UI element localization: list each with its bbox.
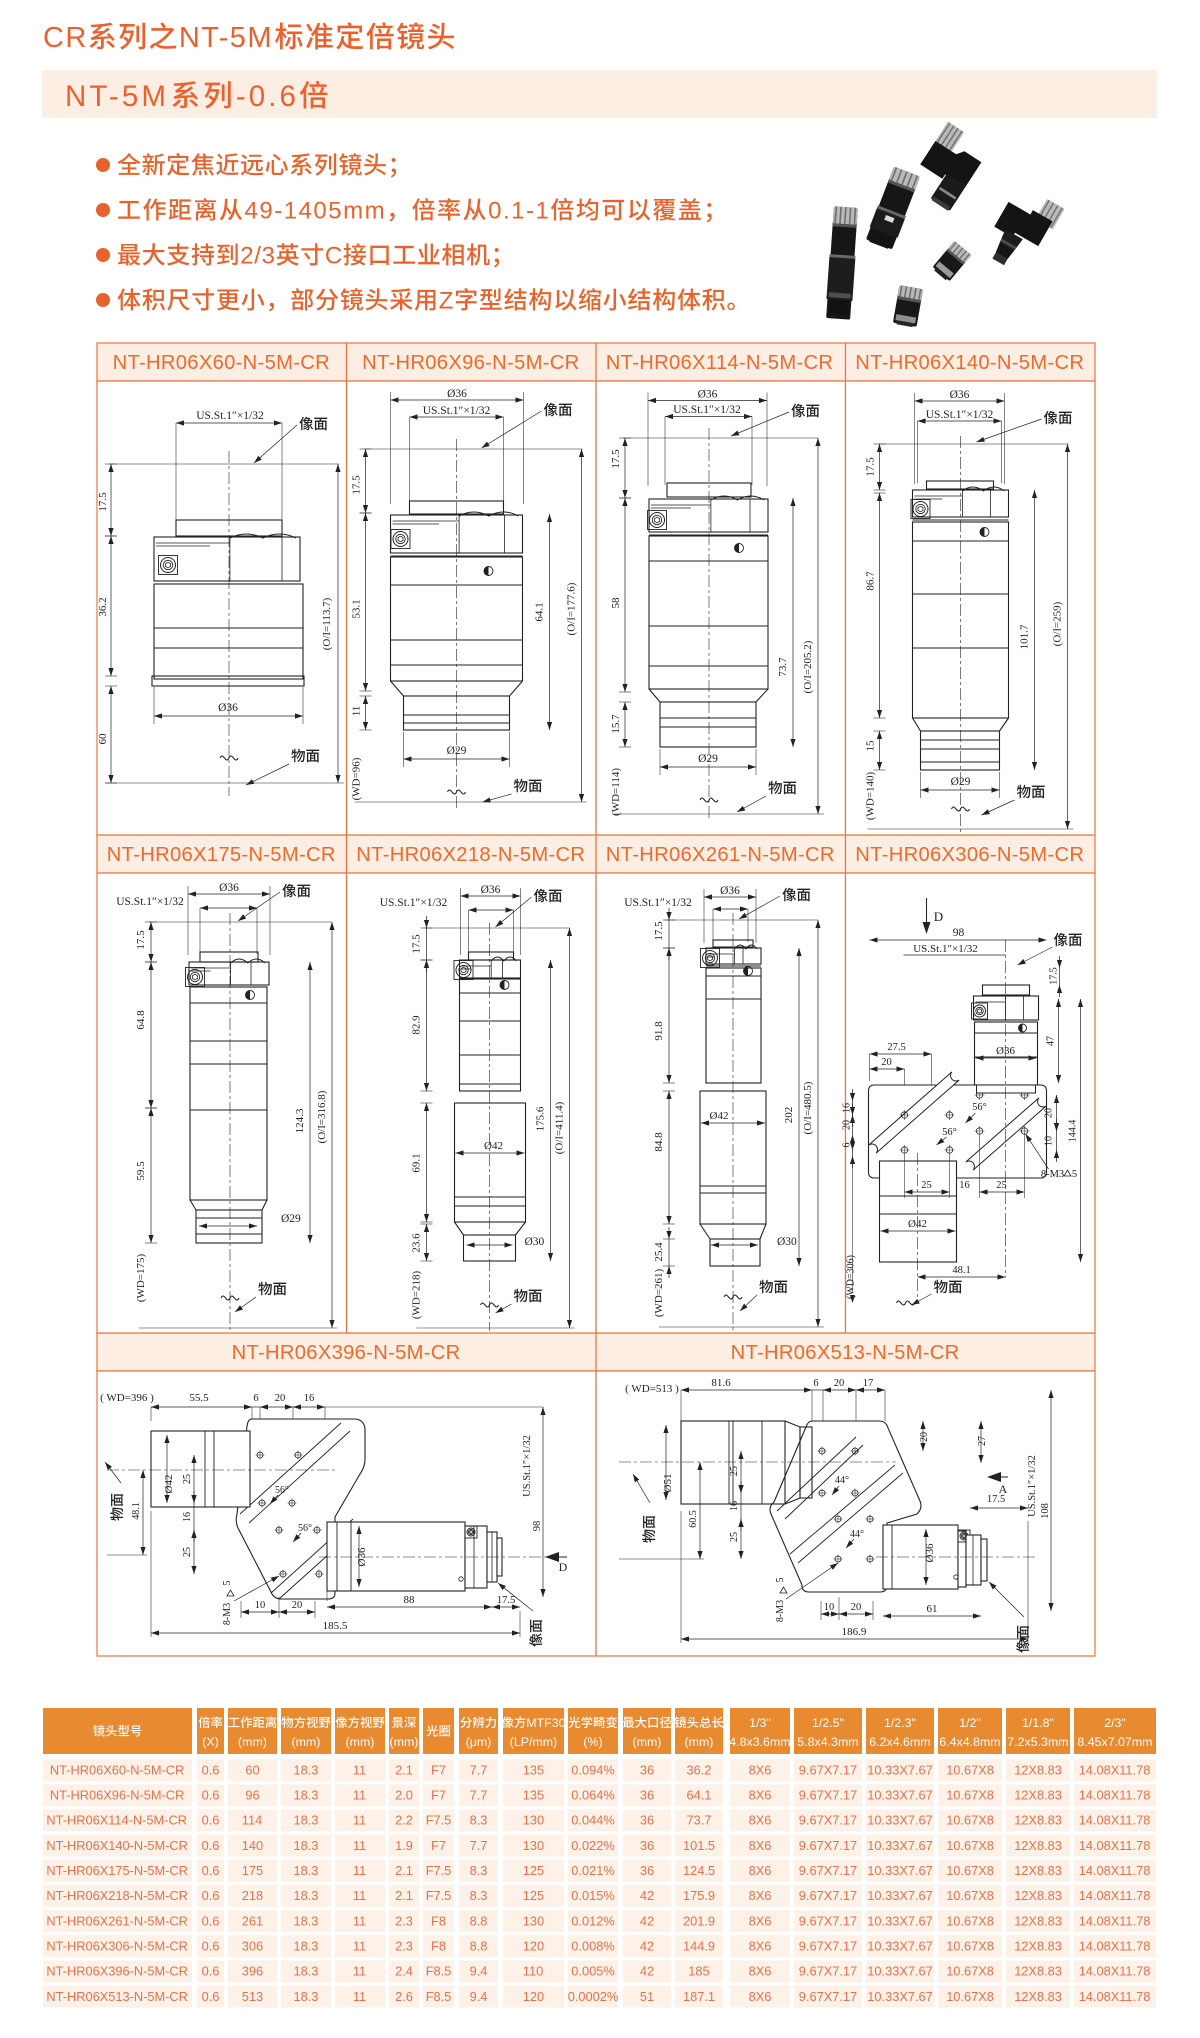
svg-text:9.67X7.17: 9.67X7.17 <box>799 1913 857 1928</box>
svg-text:Ø36: Ø36 <box>698 389 718 401</box>
svg-text:NT-HR06X218-N-5M-CR: NT-HR06X218-N-5M-CR <box>46 1888 188 1903</box>
svg-text:11: 11 <box>353 1939 366 1954</box>
svg-text:42: 42 <box>640 1913 654 1928</box>
svg-text:0.6: 0.6 <box>202 1762 220 1777</box>
svg-text:36: 36 <box>640 1762 654 1777</box>
svg-text:10.33X7.67: 10.33X7.67 <box>867 1989 932 2004</box>
svg-text:5: 5 <box>1072 1169 1077 1180</box>
svg-text:Ø51: Ø51 <box>662 1474 674 1493</box>
svg-text:18.3: 18.3 <box>294 1913 319 1928</box>
svg-text:2.3: 2.3 <box>395 1913 413 1928</box>
svg-text:96: 96 <box>245 1788 259 1803</box>
svg-text:8-M3: 8-M3 <box>222 1603 233 1625</box>
svg-text:124.5: 124.5 <box>683 1863 715 1878</box>
svg-text:2.4: 2.4 <box>395 1964 413 1979</box>
svg-text:36: 36 <box>640 1863 654 1878</box>
svg-text:US.St.1″×1/32: US.St.1″×1/32 <box>423 405 491 417</box>
svg-text:48.1: 48.1 <box>131 1502 142 1520</box>
svg-text:NT-5M: NT-5M <box>179 22 273 54</box>
svg-text:11: 11 <box>353 1964 366 1979</box>
svg-text:( WD=513 ): ( WD=513 ) <box>625 1383 679 1395</box>
svg-text:25: 25 <box>729 1532 740 1542</box>
svg-text:NT-HR06X140-N-5M-CR: NT-HR06X140-N-5M-CR <box>46 1838 188 1853</box>
svg-text:130: 130 <box>523 1913 544 1928</box>
svg-text:US.St.1″×1/32: US.St.1″×1/32 <box>380 897 448 909</box>
svg-text:25: 25 <box>182 1547 193 1557</box>
svg-text:Ø29: Ø29 <box>698 753 718 765</box>
svg-text:20: 20 <box>275 1393 286 1404</box>
svg-text:0.6: 0.6 <box>202 1913 220 1928</box>
svg-text:US.St.1″×1/32: US.St.1″×1/32 <box>913 943 978 955</box>
svg-text:7.7: 7.7 <box>470 1762 488 1777</box>
svg-text:2.1: 2.1 <box>395 1762 413 1777</box>
svg-text:36: 36 <box>640 1838 654 1853</box>
svg-text:10: 10 <box>1044 1136 1055 1146</box>
svg-text:6: 6 <box>842 1143 853 1148</box>
svg-text:48.1: 48.1 <box>952 1265 970 1276</box>
svg-text:17.5: 17.5 <box>610 449 622 469</box>
svg-text:12X8.83: 12X8.83 <box>1014 1788 1062 1803</box>
svg-text:10: 10 <box>824 1602 835 1613</box>
svg-text:Ø36: Ø36 <box>481 884 501 896</box>
svg-text:12X8.83: 12X8.83 <box>1014 1964 1062 1979</box>
svg-text:8.3: 8.3 <box>470 1813 488 1828</box>
svg-text:F7: F7 <box>431 1788 446 1803</box>
svg-text:17.5: 17.5 <box>865 457 877 477</box>
svg-text:185.5: 185.5 <box>323 1620 348 1632</box>
svg-text:(WD=175): (WD=175) <box>135 1253 147 1302</box>
svg-text:27: 27 <box>977 1436 988 1446</box>
svg-text:218: 218 <box>242 1888 263 1903</box>
svg-text:11: 11 <box>353 1813 366 1828</box>
svg-text:47: 47 <box>1046 1036 1057 1046</box>
svg-text:17.5: 17.5 <box>97 492 109 512</box>
svg-text:11: 11 <box>353 1762 366 1777</box>
svg-text:10.33X7.67: 10.33X7.67 <box>867 1838 932 1853</box>
svg-text:17.5: 17.5 <box>653 921 665 941</box>
svg-text:6.4x4.8mm: 6.4x4.8mm <box>939 1735 1000 1749</box>
svg-text:5: 5 <box>222 1581 233 1586</box>
svg-text:7.7: 7.7 <box>470 1838 488 1853</box>
svg-text:(mm): (mm) <box>685 1735 714 1749</box>
svg-text:135: 135 <box>523 1788 544 1803</box>
svg-text:20: 20 <box>851 1602 862 1613</box>
svg-text:12X8.83: 12X8.83 <box>1014 1989 1062 2004</box>
svg-text:60.5: 60.5 <box>688 1510 699 1528</box>
svg-text:US.St.1″×1/32: US.St.1″×1/32 <box>673 404 741 416</box>
svg-text:12X8.83: 12X8.83 <box>1014 1939 1062 1954</box>
svg-text:2/3: 2/3 <box>240 243 275 270</box>
svg-text:15.7: 15.7 <box>610 714 622 734</box>
svg-text:8X6: 8X6 <box>749 1813 772 1828</box>
svg-text:14.08X11.78: 14.08X11.78 <box>1079 1913 1151 1928</box>
svg-text:(X): (X) <box>202 1735 219 1749</box>
svg-text:396: 396 <box>242 1964 263 1979</box>
svg-text:CR: CR <box>43 22 88 54</box>
svg-text:14.08X11.78: 14.08X11.78 <box>1079 1788 1151 1803</box>
svg-text:1.9: 1.9 <box>395 1838 413 1853</box>
svg-text:140: 140 <box>242 1838 263 1853</box>
svg-text:17: 17 <box>863 1378 874 1389</box>
svg-text:10.67X8: 10.67X8 <box>946 1939 994 1954</box>
svg-text:261: 261 <box>242 1913 263 1928</box>
svg-text:110: 110 <box>523 1964 543 1979</box>
svg-text:18.3: 18.3 <box>294 1989 319 2004</box>
svg-text:125: 125 <box>523 1888 544 1903</box>
svg-text:18.3: 18.3 <box>294 1813 319 1828</box>
svg-text:91.8: 91.8 <box>653 1021 665 1041</box>
svg-text:Ø36: Ø36 <box>447 388 467 400</box>
svg-text:513: 513 <box>242 1989 263 2004</box>
svg-text:(%): (%) <box>583 1735 602 1749</box>
svg-text:101.5: 101.5 <box>683 1838 715 1853</box>
svg-text:60: 60 <box>245 1762 259 1777</box>
svg-text:10.67X8: 10.67X8 <box>946 1838 994 1853</box>
svg-text:0.6: 0.6 <box>202 1788 220 1803</box>
svg-text:20: 20 <box>842 1120 853 1130</box>
svg-text:186.9: 186.9 <box>842 1626 867 1638</box>
svg-text:2.3: 2.3 <box>395 1939 413 1954</box>
svg-text:14.08X11.78: 14.08X11.78 <box>1079 1989 1151 2004</box>
svg-text:0.6: 0.6 <box>202 1838 220 1853</box>
svg-text:9.67X7.17: 9.67X7.17 <box>799 1989 857 2004</box>
svg-text:F8.5: F8.5 <box>426 1989 452 2004</box>
svg-text:10.67X8: 10.67X8 <box>946 1762 994 1777</box>
svg-text:11: 11 <box>353 1838 366 1853</box>
svg-text:36: 36 <box>640 1813 654 1828</box>
svg-text:14.08X11.78: 14.08X11.78 <box>1079 1939 1151 1954</box>
svg-text:8X6: 8X6 <box>749 1888 772 1903</box>
svg-text:1/2.3": 1/2.3" <box>884 1716 916 1730</box>
svg-text:NT-HR06X60-N-5M-CR: NT-HR06X60-N-5M-CR <box>50 1762 184 1777</box>
svg-text:49-1405mm: 49-1405mm <box>245 198 387 225</box>
svg-text:11: 11 <box>353 1888 366 1903</box>
svg-text:6: 6 <box>813 1378 818 1389</box>
svg-text:9.67X7.17: 9.67X7.17 <box>799 1939 857 1954</box>
svg-text:7.2x5.3mm: 7.2x5.3mm <box>1007 1735 1068 1749</box>
svg-text:20: 20 <box>834 1378 845 1389</box>
svg-text:0.012%: 0.012% <box>571 1913 614 1928</box>
svg-text:-0.6: -0.6 <box>236 80 299 113</box>
svg-text:42: 42 <box>640 1888 654 1903</box>
svg-text:NT-HR06X306-N-5M-CR: NT-HR06X306-N-5M-CR <box>46 1939 188 1954</box>
svg-text:8X6: 8X6 <box>749 1863 772 1878</box>
svg-text:14.08X11.78: 14.08X11.78 <box>1079 1964 1151 1979</box>
svg-text:NT-HR06X261-N-5M-CR: NT-HR06X261-N-5M-CR <box>606 844 835 866</box>
svg-text:Ø30: Ø30 <box>525 1236 545 1248</box>
svg-text:306: 306 <box>242 1939 263 1954</box>
svg-text:16: 16 <box>182 1512 193 1522</box>
svg-text:8.3: 8.3 <box>470 1888 488 1903</box>
svg-text:175.6: 175.6 <box>535 1106 547 1131</box>
svg-text:11: 11 <box>353 1863 366 1878</box>
svg-text:Z: Z <box>439 288 454 315</box>
svg-text:58: 58 <box>610 597 622 609</box>
svg-text:42: 42 <box>640 1939 654 1954</box>
svg-text:56°: 56° <box>275 1485 289 1496</box>
svg-text:17.5: 17.5 <box>411 934 423 954</box>
svg-text:42: 42 <box>640 1964 654 1979</box>
svg-text:0.6: 0.6 <box>202 1964 220 1979</box>
svg-text:55.5: 55.5 <box>189 1392 209 1404</box>
svg-text:8X6: 8X6 <box>749 1913 772 1928</box>
svg-text:US.St.1″×1/32: US.St.1″×1/32 <box>1027 1455 1038 1517</box>
svg-text:59.5: 59.5 <box>135 1161 147 1181</box>
svg-text:(mm): (mm) <box>292 1735 321 1749</box>
svg-text:5.8x4.3mm: 5.8x4.3mm <box>797 1735 858 1749</box>
svg-text:9.67X7.17: 9.67X7.17 <box>799 1888 857 1903</box>
svg-text:8.8: 8.8 <box>470 1939 488 1954</box>
svg-text:D: D <box>559 1560 568 1574</box>
svg-text:10.67X8: 10.67X8 <box>946 1813 994 1828</box>
svg-text:US.St.1″×1/32: US.St.1″×1/32 <box>522 1435 533 1497</box>
svg-text:0.022%: 0.022% <box>571 1838 614 1853</box>
svg-text:20: 20 <box>1044 1108 1055 1118</box>
svg-text:9.67X7.17: 9.67X7.17 <box>799 1813 857 1828</box>
svg-text:F8: F8 <box>431 1939 446 1954</box>
svg-text:10.67X8: 10.67X8 <box>946 1913 994 1928</box>
svg-text:NT-HR06X218-N-5M-CR: NT-HR06X218-N-5M-CR <box>356 844 585 866</box>
svg-text:25: 25 <box>182 1474 193 1484</box>
svg-text:11: 11 <box>351 706 363 717</box>
svg-text:9.4: 9.4 <box>470 1964 488 1979</box>
svg-text:14.08X11.78: 14.08X11.78 <box>1079 1838 1151 1853</box>
svg-text:36.2: 36.2 <box>97 597 109 616</box>
svg-text:20: 20 <box>881 1057 892 1068</box>
svg-text:10.33X7.67: 10.33X7.67 <box>867 1863 932 1878</box>
svg-text:64.1: 64.1 <box>687 1788 712 1803</box>
svg-text:1/2": 1/2" <box>959 1716 981 1730</box>
svg-text:C: C <box>325 243 343 270</box>
svg-text:18.3: 18.3 <box>294 1888 319 1903</box>
svg-text:12X8.83: 12X8.83 <box>1014 1838 1062 1853</box>
svg-text:61: 61 <box>927 1603 938 1615</box>
svg-text:8X6: 8X6 <box>749 1964 772 1979</box>
svg-text:98: 98 <box>532 1521 543 1532</box>
svg-text:10.33X7.67: 10.33X7.67 <box>867 1813 932 1828</box>
svg-text:8X6: 8X6 <box>749 1788 772 1803</box>
svg-text:NT-HR06X396-N-5M-CR: NT-HR06X396-N-5M-CR <box>232 1342 461 1364</box>
svg-text:14.08X11.78: 14.08X11.78 <box>1079 1863 1151 1878</box>
svg-text:14.08X11.78: 14.08X11.78 <box>1079 1813 1151 1828</box>
svg-text:0.6: 0.6 <box>202 1989 220 2004</box>
svg-text:84.8: 84.8 <box>653 1132 665 1152</box>
svg-text:0.6: 0.6 <box>202 1888 220 1903</box>
svg-text:NT-HR06X175-N-5M-CR: NT-HR06X175-N-5M-CR <box>107 844 336 866</box>
svg-text:36.2: 36.2 <box>687 1762 712 1777</box>
svg-text:(mm): (mm) <box>633 1735 662 1749</box>
svg-text:US.St.1″×1/32: US.St.1″×1/32 <box>116 896 184 908</box>
svg-text:F7: F7 <box>431 1838 446 1853</box>
svg-text:8X6: 8X6 <box>749 1838 772 1853</box>
svg-text:101.7: 101.7 <box>1019 624 1031 649</box>
svg-text:Ø30: Ø30 <box>777 1236 797 1248</box>
svg-text:(O/I=177.6): (O/I=177.6) <box>566 582 578 635</box>
svg-text:144.4: 144.4 <box>1068 1120 1079 1143</box>
svg-text:Ø36: Ø36 <box>720 885 740 897</box>
svg-text:53.1: 53.1 <box>351 599 363 618</box>
svg-text:10.67X8: 10.67X8 <box>946 1888 994 1903</box>
svg-text:NT-HR06X513-N-5M-CR: NT-HR06X513-N-5M-CR <box>731 1342 960 1364</box>
svg-text:10.67X8: 10.67X8 <box>946 1989 994 2004</box>
svg-text:56°: 56° <box>298 1523 312 1534</box>
svg-text:120: 120 <box>523 1939 544 1954</box>
svg-text:108: 108 <box>1040 1503 1051 1519</box>
svg-text:98: 98 <box>953 927 965 939</box>
svg-text:86.7: 86.7 <box>865 571 877 591</box>
svg-text:8.45x7.07mm: 8.45x7.07mm <box>1077 1735 1152 1749</box>
svg-text:1/2.5": 1/2.5" <box>812 1716 844 1730</box>
svg-text:(LP/mm): (LP/mm) <box>510 1735 558 1749</box>
svg-text:12X8.83: 12X8.83 <box>1014 1762 1062 1777</box>
svg-text:NT-HR06X114-N-5M-CR: NT-HR06X114-N-5M-CR <box>46 1813 187 1828</box>
svg-text:16: 16 <box>729 1501 740 1511</box>
svg-text:(O/I=316.8): (O/I=316.8) <box>316 1090 328 1143</box>
svg-text:18.3: 18.3 <box>294 1964 319 1979</box>
svg-text:NT-HR06X60-N-5M-CR: NT-HR06X60-N-5M-CR <box>113 352 330 374</box>
svg-text:8X6: 8X6 <box>749 1989 772 2004</box>
svg-text:202: 202 <box>783 1107 795 1124</box>
svg-text:23.6: 23.6 <box>411 1233 423 1253</box>
svg-text:2.1: 2.1 <box>395 1888 413 1903</box>
svg-text:NT-HR06X114-N-5M-CR: NT-HR06X114-N-5M-CR <box>606 352 833 374</box>
svg-text:18.3: 18.3 <box>294 1788 319 1803</box>
svg-text:MTF30: MTF30 <box>526 1716 565 1730</box>
svg-text:Ø42: Ø42 <box>484 1140 503 1152</box>
svg-text:120: 120 <box>523 1989 544 2004</box>
svg-text:7.7: 7.7 <box>470 1788 488 1803</box>
svg-text:69.1: 69.1 <box>411 1153 423 1172</box>
svg-text:17.5: 17.5 <box>1049 967 1060 985</box>
svg-text:10.67X8: 10.67X8 <box>946 1788 994 1803</box>
svg-text:NT-HR06X175-N-5M-CR: NT-HR06X175-N-5M-CR <box>46 1863 188 1878</box>
svg-text:73.7: 73.7 <box>687 1813 712 1828</box>
svg-text:10.33X7.67: 10.33X7.67 <box>867 1913 932 1928</box>
svg-text:187.1: 187.1 <box>683 1989 715 2004</box>
svg-text:17.5: 17.5 <box>497 1595 515 1606</box>
svg-text:(O/I=480.5): (O/I=480.5) <box>802 1081 814 1134</box>
svg-text:(WD=261): (WD=261) <box>653 1268 665 1317</box>
svg-text:9.67X7.17: 9.67X7.17 <box>799 1762 857 1777</box>
svg-text:0.6: 0.6 <box>202 1939 220 1954</box>
svg-text:NT-HR06X96-N-5M-CR: NT-HR06X96-N-5M-CR <box>50 1788 184 1803</box>
svg-text:12X8.83: 12X8.83 <box>1014 1913 1062 1928</box>
svg-text:F8: F8 <box>431 1913 446 1928</box>
svg-text:0.1-1: 0.1-1 <box>488 198 550 225</box>
svg-text:144.9: 144.9 <box>683 1939 715 1954</box>
svg-text:11: 11 <box>353 1788 366 1803</box>
svg-text:9.4: 9.4 <box>470 1989 488 2004</box>
svg-text:25: 25 <box>996 1180 1007 1191</box>
svg-text:(WD=96): (WD=96) <box>351 757 363 800</box>
svg-text:(WD=306): (WD=306) <box>846 1255 857 1299</box>
svg-text:1/1.8": 1/1.8" <box>1022 1716 1054 1730</box>
svg-text:NT-HR06X513-N-5M-CR: NT-HR06X513-N-5M-CR <box>46 1989 188 2004</box>
svg-text:US.St.1″×1/32: US.St.1″×1/32 <box>624 897 692 909</box>
svg-text:12X8.83: 12X8.83 <box>1014 1813 1062 1828</box>
svg-text:NT-HR06X96-N-5M-CR: NT-HR06X96-N-5M-CR <box>362 352 579 374</box>
svg-text:27.5: 27.5 <box>887 1042 905 1053</box>
svg-text:0.064%: 0.064% <box>571 1788 614 1803</box>
svg-text:64.8: 64.8 <box>135 1010 147 1030</box>
svg-text:44°: 44° <box>835 1475 849 1486</box>
svg-text:8-M3: 8-M3 <box>1041 1169 1064 1180</box>
svg-text:(WD=218): (WD=218) <box>411 1270 423 1319</box>
svg-text:8.3: 8.3 <box>470 1863 488 1878</box>
svg-text:(WD=140): (WD=140) <box>865 771 877 820</box>
svg-text:Ø36: Ø36 <box>219 882 239 894</box>
svg-text:25.4: 25.4 <box>653 1242 665 1262</box>
svg-text:56°: 56° <box>942 1127 957 1138</box>
svg-text:Ø42: Ø42 <box>710 1110 729 1122</box>
svg-text:36: 36 <box>640 1788 654 1803</box>
svg-text:NT-HR06X140-N-5M-CR: NT-HR06X140-N-5M-CR <box>855 352 1084 374</box>
svg-text:F8.5: F8.5 <box>426 1964 452 1979</box>
svg-text:Ø36: Ø36 <box>218 702 238 714</box>
svg-text:A: A <box>999 1482 1008 1496</box>
svg-text:NT-HR06X396-N-5M-CR: NT-HR06X396-N-5M-CR <box>46 1964 188 1979</box>
svg-text:4.8x3.6mm: 4.8x3.6mm <box>729 1735 790 1749</box>
svg-text:F7.5: F7.5 <box>426 1863 452 1878</box>
svg-text:10.33X7.67: 10.33X7.67 <box>867 1788 932 1803</box>
svg-text:130: 130 <box>523 1813 544 1828</box>
svg-text:Ø42: Ø42 <box>163 1475 175 1494</box>
svg-text:56°: 56° <box>972 1102 987 1113</box>
svg-text:60: 60 <box>97 733 109 745</box>
svg-text:0.021%: 0.021% <box>571 1863 614 1878</box>
svg-text:2.2: 2.2 <box>395 1813 413 1828</box>
svg-text:185: 185 <box>688 1964 709 1979</box>
svg-text:124.3: 124.3 <box>294 1108 306 1133</box>
svg-text:(WD=114): (WD=114) <box>610 768 622 816</box>
svg-text:( WD=396 ): ( WD=396 ) <box>100 1392 154 1404</box>
svg-text:175: 175 <box>242 1863 263 1878</box>
svg-text:20: 20 <box>292 1600 303 1611</box>
svg-text:US.St.1″×1/32: US.St.1″×1/32 <box>926 409 994 421</box>
svg-text:8-M3: 8-M3 <box>775 1600 786 1622</box>
svg-text:73.7: 73.7 <box>777 657 789 677</box>
svg-text:20: 20 <box>919 1432 930 1442</box>
svg-text:12X8.83: 12X8.83 <box>1014 1888 1062 1903</box>
svg-text:9.67X7.17: 9.67X7.17 <box>799 1788 857 1803</box>
svg-text:0.0002%: 0.0002% <box>568 1989 619 2004</box>
svg-text:16: 16 <box>304 1393 315 1404</box>
svg-text:(O/I=411.4): (O/I=411.4) <box>554 1101 566 1154</box>
svg-text:44°: 44° <box>850 1529 864 1540</box>
svg-text:9.67X7.17: 9.67X7.17 <box>799 1838 857 1853</box>
svg-text:US.St.1″×1/32: US.St.1″×1/32 <box>196 410 264 422</box>
svg-text:10.33X7.67: 10.33X7.67 <box>867 1939 932 1954</box>
svg-text:15: 15 <box>865 740 877 752</box>
svg-text:(O/I=259): (O/I=259) <box>1052 601 1064 646</box>
svg-text:18.3: 18.3 <box>294 1939 319 1954</box>
svg-text:12X8.83: 12X8.83 <box>1014 1863 1062 1878</box>
svg-text:8X6: 8X6 <box>749 1939 772 1954</box>
svg-text:F7: F7 <box>431 1762 446 1777</box>
svg-text:(O/I=113.7): (O/I=113.7) <box>321 597 333 650</box>
svg-text:D: D <box>934 909 943 924</box>
svg-text:5: 5 <box>775 1578 786 1583</box>
svg-text:9.67X7.17: 9.67X7.17 <box>799 1863 857 1878</box>
svg-text:(mm): (mm) <box>238 1735 267 1749</box>
svg-text:0.6: 0.6 <box>202 1813 220 1828</box>
svg-text:51: 51 <box>640 1989 654 2004</box>
svg-text:17.5: 17.5 <box>135 930 147 950</box>
svg-text:0.005%: 0.005% <box>571 1964 614 1979</box>
svg-text:10.33X7.67: 10.33X7.67 <box>867 1762 932 1777</box>
svg-text:10.33X7.67: 10.33X7.67 <box>867 1964 932 1979</box>
svg-text:18.3: 18.3 <box>294 1838 319 1853</box>
